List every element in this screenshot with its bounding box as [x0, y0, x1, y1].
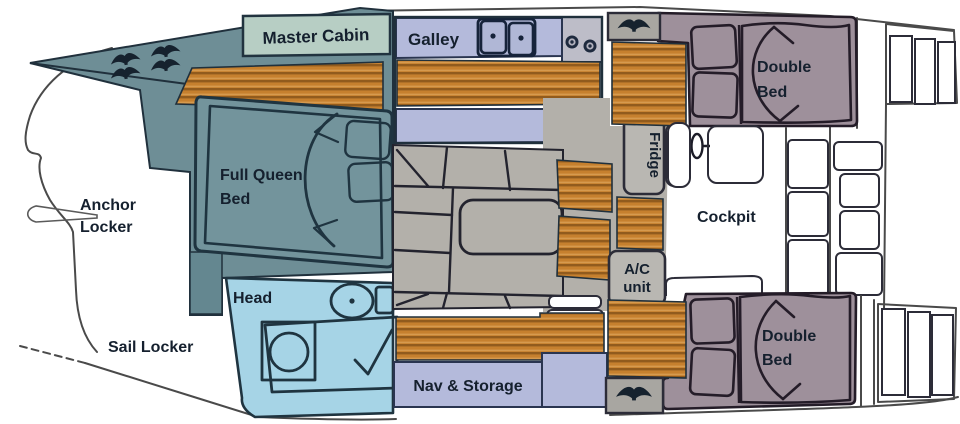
galley-seat-back: [396, 109, 548, 143]
cockpit-label: Cockpit: [697, 209, 756, 226]
queen-bed-room: Full Queen Bed: [195, 97, 394, 267]
nav-storage-box: Nav & Storage: [394, 353, 607, 407]
sail-locker-label: Sail Locker: [108, 339, 193, 356]
cockpit-bench: [708, 126, 763, 183]
floor-plan-svg: Master Cabin Full Queen Bed Head: [0, 0, 960, 424]
double-bed-label-bottom: Double: [762, 328, 816, 345]
ac-unit-label: A/C: [624, 261, 650, 278]
aft-cabin-port: Double Bed: [606, 293, 856, 413]
galley-label: Galley: [408, 30, 460, 49]
head-room: Head: [226, 278, 397, 417]
aft-cabin-starboard: Double Bed: [608, 13, 857, 126]
double-bed-label-top2: Bed: [757, 84, 787, 101]
fridge-label: Fridge: [646, 132, 663, 178]
anchor-locker-label: Anchor: [80, 197, 136, 214]
double-bed-label-bottom2: Bed: [762, 352, 792, 369]
master-cabin-label: Master Cabin: [262, 25, 369, 48]
ac-unit: A/C unit: [609, 251, 665, 305]
anchor-locker-label2: Locker: [80, 219, 132, 236]
double-bed-label-top: Double: [757, 59, 811, 76]
storage-box: [542, 353, 607, 407]
cockpit-area: Cockpit: [666, 123, 763, 296]
ac-unit-label2: unit: [623, 279, 651, 296]
wood-floor-port: [608, 300, 686, 378]
salon-table: [460, 200, 562, 254]
stern-steps: [786, 128, 882, 296]
cleat-box: [608, 13, 660, 40]
hull-dashed-line: [20, 346, 85, 363]
wood-floor-stbd: [612, 42, 686, 126]
stern-windows-top: [886, 24, 957, 104]
stern-windows-bottom: [861, 296, 956, 406]
cockpit-seat: [668, 123, 690, 187]
head-label: Head: [233, 290, 272, 307]
full-queen-bed-label: Full Queen: [220, 167, 303, 184]
nav-storage-label: Nav & Storage: [413, 378, 522, 395]
sink-icon: [478, 19, 535, 56]
stove-icon: [562, 17, 602, 62]
cleat-box: [606, 378, 663, 413]
master-cabin: Master Cabin: [243, 14, 390, 56]
floor-plan: Master Cabin Full Queen Bed Head: [0, 0, 960, 424]
deck-step: [190, 252, 222, 314]
step: [549, 296, 601, 308]
full-queen-bed-label2: Bed: [220, 191, 250, 208]
